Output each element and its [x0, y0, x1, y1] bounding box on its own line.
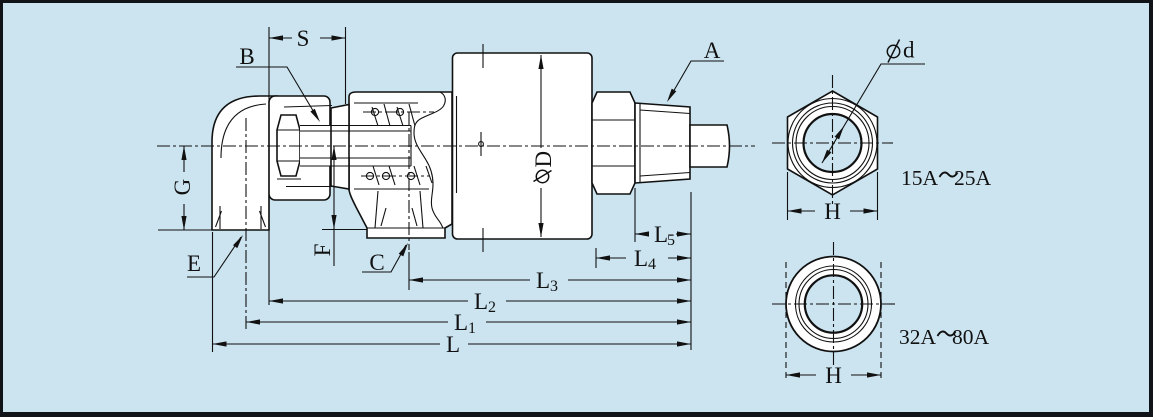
svg-text:25A: 25A [954, 166, 992, 190]
svg-text:15A: 15A [901, 166, 939, 190]
svg-text:L: L [634, 246, 648, 271]
svg-text:32A: 32A [899, 325, 937, 349]
svg-text:L: L [536, 268, 550, 293]
svg-text:C: C [369, 250, 384, 275]
svg-text:F: F [310, 244, 335, 257]
svg-text:S: S [297, 26, 310, 51]
svg-text:1: 1 [468, 320, 476, 337]
svg-text:B: B [239, 44, 254, 69]
svg-text:A: A [704, 38, 721, 63]
svg-text:H: H [824, 199, 841, 224]
svg-text:G: G [170, 179, 195, 196]
svg-text:2: 2 [488, 299, 496, 316]
svg-text:3: 3 [550, 278, 558, 295]
svg-text:L: L [654, 222, 668, 247]
svg-text:4: 4 [648, 256, 656, 273]
svg-text:E: E [187, 251, 201, 276]
svg-text:d: d [903, 38, 915, 63]
svg-text:80A: 80A [952, 325, 990, 349]
svg-text:L: L [446, 332, 460, 357]
svg-text:H: H [825, 363, 842, 388]
svg-text:D: D [531, 151, 556, 168]
svg-text:5: 5 [667, 232, 675, 249]
svg-text:L: L [474, 289, 488, 314]
